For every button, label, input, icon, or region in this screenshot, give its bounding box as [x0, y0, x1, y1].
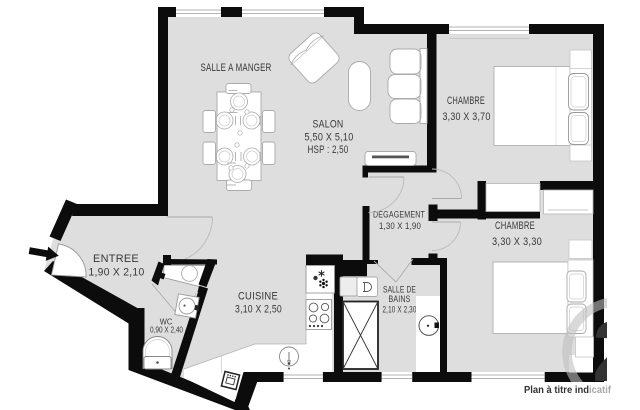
svg-text:3,30 X 3,70: 3,30 X 3,70 — [443, 111, 491, 123]
svg-text:5,50 X 5,10: 5,50 X 5,10 — [305, 132, 354, 144]
svg-text:Plan à titre indicatif: Plan à titre indicatif — [524, 384, 611, 396]
svg-text:2,10 X 2,30: 2,10 X 2,30 — [383, 305, 417, 315]
svg-text:DEGAGEMENT: DEGAGEMENT — [373, 210, 425, 220]
svg-text:CUISINE: CUISINE — [238, 291, 278, 303]
svg-text:SALON: SALON — [313, 119, 344, 131]
svg-text:CHAMBRE: CHAMBRE — [495, 220, 535, 232]
svg-text:HSP : 2,50: HSP : 2,50 — [308, 144, 349, 156]
svg-text:SALLE DE: SALLE DE — [383, 285, 416, 295]
svg-text:BAINS: BAINS — [389, 294, 411, 304]
svg-text:ENTREE: ENTREE — [93, 253, 139, 265]
svg-text:1,30 X 1,90: 1,30 X 1,90 — [379, 221, 421, 231]
svg-text:0,90 X 2,40: 0,90 X 2,40 — [150, 326, 184, 335]
svg-text:SALLE A MANGER: SALLE A MANGER — [201, 62, 272, 74]
svg-text:3,30 X 3,30: 3,30 X 3,30 — [492, 236, 542, 248]
svg-text:1,90 X 2,10: 1,90 X 2,10 — [89, 267, 145, 279]
svg-text:CHAMBRE: CHAMBRE — [447, 95, 485, 107]
svg-text:3,10 X 2,50: 3,10 X 2,50 — [235, 304, 282, 316]
